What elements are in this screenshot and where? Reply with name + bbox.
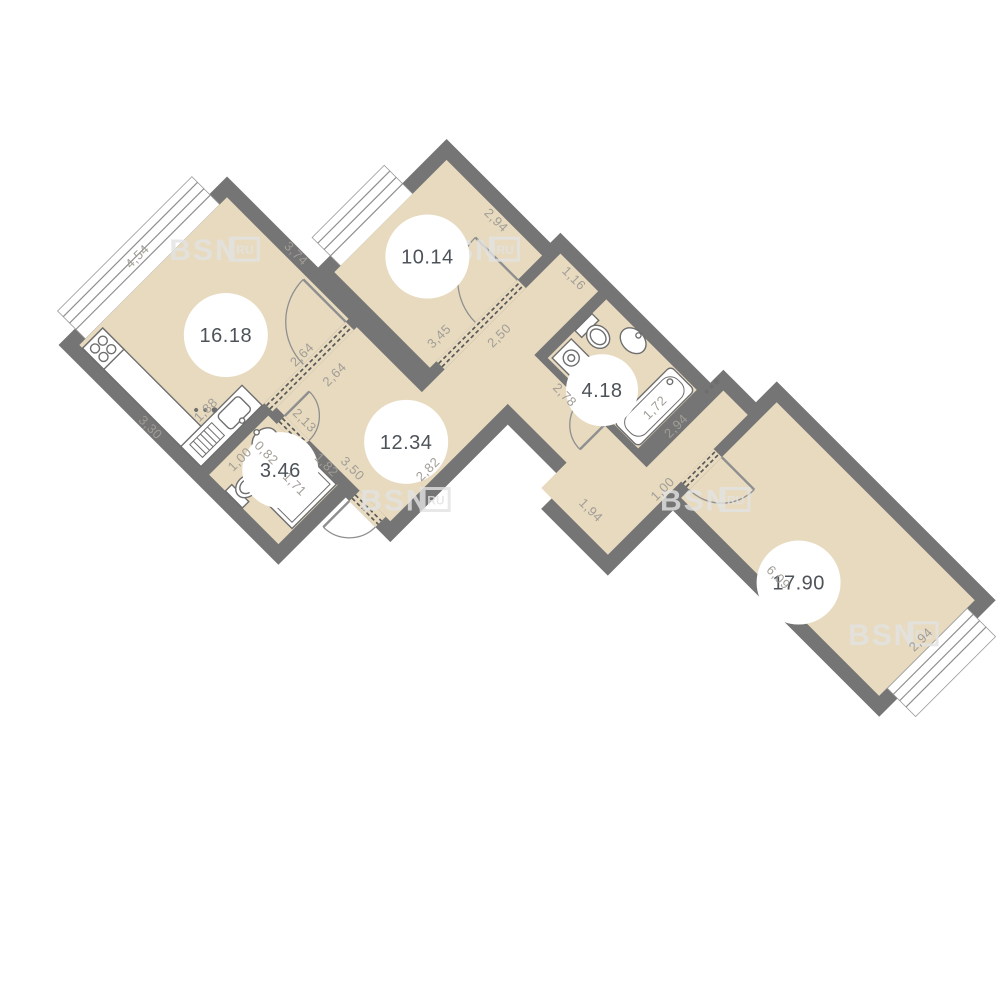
watermark-suffix: RU [236, 243, 253, 257]
floor-plan-svg: BSN RU BSN RU BSN RU BSN RU BSN RU 16.18 [0, 0, 1000, 1000]
area-label-living-kitchen: 16.18 [200, 325, 253, 347]
floor-plan-page: BSN RU BSN RU BSN RU BSN RU BSN RU 16.18 [0, 0, 1000, 1000]
svg-text:BSN: BSN [360, 485, 429, 518]
area-label-bathroom: 4.18 [582, 380, 623, 402]
exterior-walls [59, 4, 996, 941]
area-label-bedroom: 10.14 [401, 247, 454, 269]
area-label-hallway: 12.34 [380, 432, 433, 454]
svg-text:BSN: BSN [848, 619, 917, 652]
svg-text:RU: RU [727, 494, 744, 508]
svg-text:RU: RU [496, 243, 513, 257]
svg-text:RU: RU [427, 494, 444, 508]
watermark: BSN RU [360, 485, 449, 518]
floor-plan: BSN RU BSN RU BSN RU BSN RU BSN RU 16.18 [41, 0, 1000, 960]
watermark-brand: BSN [169, 234, 238, 267]
